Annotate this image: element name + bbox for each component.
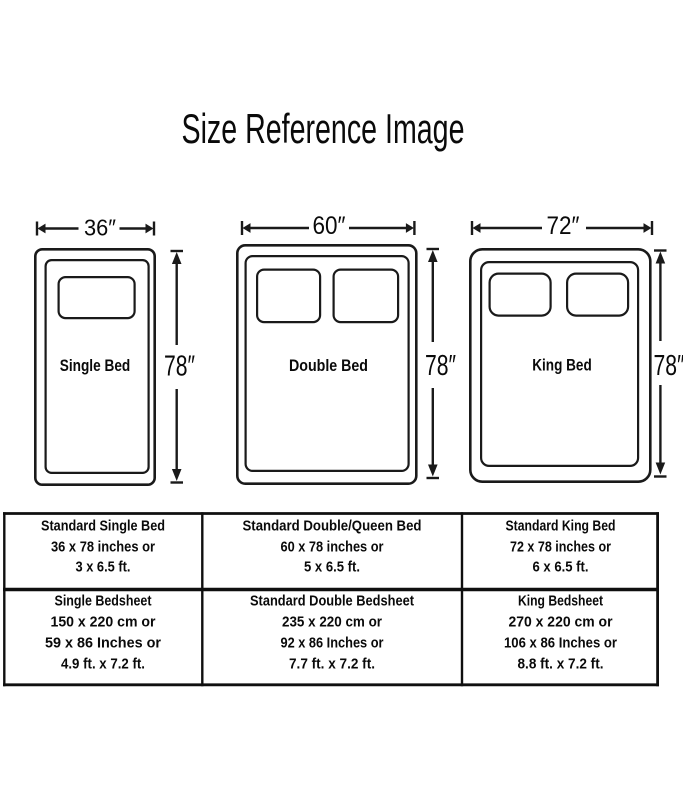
svg-text:36″: 36″: [84, 215, 116, 241]
svg-text:Standard Single Bed: Standard Single Bed: [41, 518, 165, 535]
svg-text:Double Bed: Double Bed: [289, 356, 368, 375]
svg-text:78″: 78″: [654, 350, 683, 382]
svg-text:King Bed: King Bed: [532, 356, 592, 375]
svg-text:4.9 ft. x 7.2 ft.: 4.9 ft. x 7.2 ft.: [61, 656, 145, 673]
svg-text:270 x 220 cm or: 270 x 220 cm or: [509, 614, 613, 631]
svg-text:72″: 72″: [547, 212, 580, 240]
svg-text:8.8 ft. x 7.2 ft.: 8.8 ft. x 7.2 ft.: [518, 656, 604, 673]
svg-text:78″: 78″: [425, 350, 456, 382]
svg-text:6 x 6.5 ft.: 6 x 6.5 ft.: [533, 558, 589, 575]
svg-text:5 x 6.5 ft.: 5 x 6.5 ft.: [304, 558, 360, 575]
svg-text:72 x 78 inches or: 72 x 78 inches or: [510, 538, 611, 555]
svg-text:Single Bedsheet: Single Bedsheet: [55, 593, 152, 610]
svg-text:Single Bed: Single Bed: [60, 356, 131, 375]
svg-text:36 x 78 inches or: 36 x 78 inches or: [51, 538, 155, 555]
svg-text:60″: 60″: [313, 212, 346, 240]
svg-text:78″: 78″: [164, 351, 195, 383]
svg-text:150 x 220 cm or: 150 x 220 cm or: [51, 614, 156, 631]
svg-text:60 x 78 inches or: 60 x 78 inches or: [281, 538, 384, 555]
svg-text:59 x 86 Inches or: 59 x 86 Inches or: [45, 635, 161, 652]
svg-text:106 x 86 Inches or: 106 x 86 Inches or: [504, 635, 617, 652]
svg-text:Size Reference Image: Size Reference Image: [182, 105, 465, 152]
svg-text:King Bedsheet: King Bedsheet: [518, 593, 603, 610]
svg-text:Standard Double/Queen Bed: Standard Double/Queen Bed: [243, 518, 422, 535]
svg-text:235 x 220 cm or: 235 x 220 cm or: [282, 614, 382, 631]
svg-text:3 x 6.5 ft.: 3 x 6.5 ft.: [76, 558, 131, 575]
svg-text:7.7 ft. x 7.2 ft.: 7.7 ft. x 7.2 ft.: [289, 656, 375, 673]
svg-text:Standard King Bed: Standard King Bed: [506, 518, 616, 535]
svg-text:92 x 86 Inches or: 92 x 86 Inches or: [281, 635, 384, 652]
svg-text:Standard Double Bedsheet: Standard Double Bedsheet: [250, 593, 414, 610]
